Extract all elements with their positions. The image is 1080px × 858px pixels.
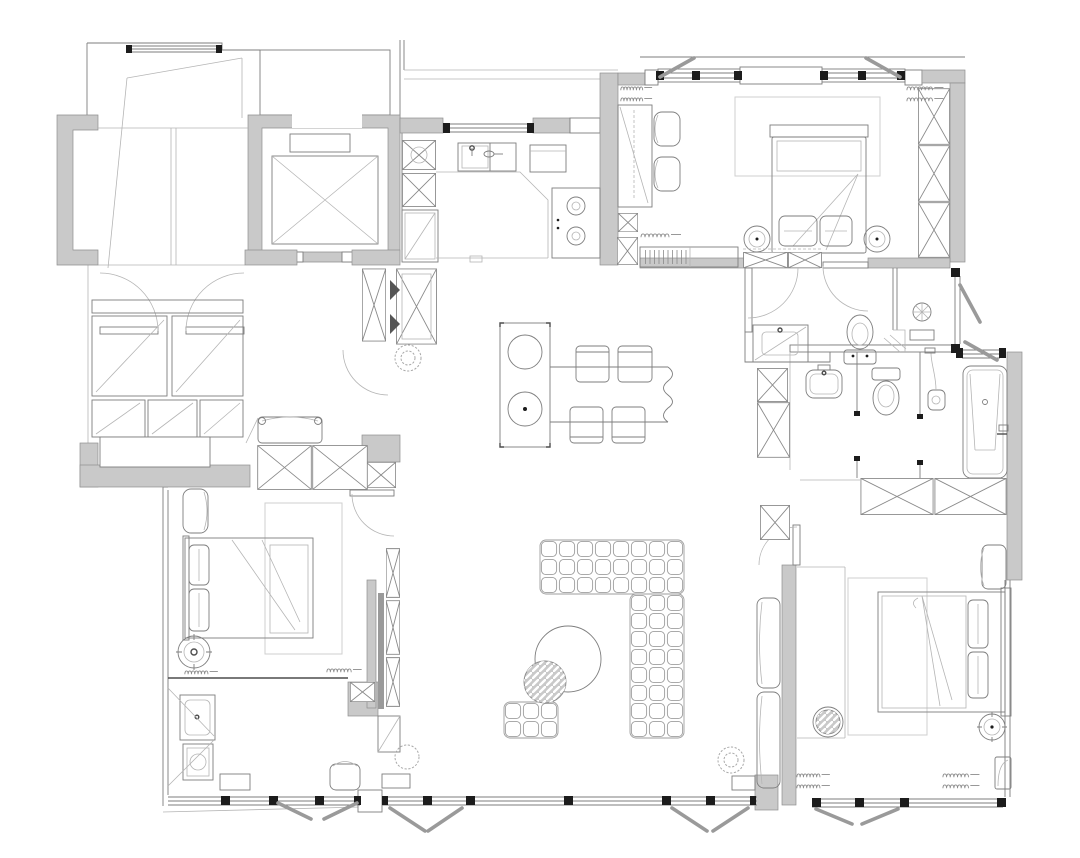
radiator-coil	[641, 234, 681, 237]
cabinet-x	[366, 462, 395, 487]
window-bedroom-top	[656, 67, 905, 84]
doormat-hatch	[220, 774, 250, 790]
blanket-fold	[232, 540, 300, 630]
bedroom-top-right	[618, 89, 950, 258]
kitchen-island	[500, 323, 550, 447]
round-nightstand	[977, 712, 1007, 742]
refrigerator-door-line	[405, 213, 435, 259]
dining-table	[550, 367, 673, 422]
mirror-panel	[378, 593, 384, 709]
wall-bedroom-corner	[922, 70, 965, 83]
drain	[983, 400, 988, 405]
wall-kitchen-top-right	[533, 118, 570, 133]
washer	[183, 744, 213, 780]
radiator-coil	[943, 774, 980, 777]
wardrobe-x	[918, 203, 949, 258]
headboard	[183, 536, 189, 640]
toilet	[844, 315, 876, 364]
kitchen	[402, 140, 600, 262]
radiator-coil	[621, 87, 652, 90]
door-hall-to-bath	[748, 268, 798, 318]
counter-tick	[470, 256, 482, 262]
tall-cabinet-x	[397, 269, 437, 344]
bed-frame	[878, 592, 1005, 712]
wall-kitchen-top-left	[400, 118, 443, 133]
radiator-coil	[185, 671, 218, 674]
open-sash	[866, 58, 900, 77]
radiators	[185, 87, 980, 788]
wardrobe-x	[313, 446, 368, 490]
wall-bench-sofa	[757, 598, 780, 788]
blanket-fold	[793, 174, 858, 250]
cabinet-x	[618, 213, 638, 232]
cabinet-x	[617, 237, 637, 264]
headboard	[1001, 588, 1011, 716]
open-sash	[660, 58, 694, 77]
radiator-coil	[943, 785, 980, 788]
cabinet-x	[788, 252, 821, 268]
radiator-coil	[797, 774, 830, 777]
wall-bedroom-bottom-right	[868, 258, 950, 268]
round-nightstand	[176, 634, 212, 670]
elevator	[272, 134, 378, 244]
bed-frame	[185, 538, 313, 638]
tall-cabinet-x	[362, 269, 385, 341]
rug	[265, 503, 342, 654]
plant-scribble	[395, 345, 421, 371]
desk	[618, 105, 652, 207]
window-living-bottom	[382, 796, 757, 805]
shower	[884, 268, 934, 352]
elevator-x	[272, 156, 378, 244]
open-sash	[428, 808, 462, 831]
plant-stool-hatched	[813, 707, 843, 737]
tv-console	[995, 757, 1011, 789]
wall-bath-upper-left	[745, 268, 752, 332]
cooktop	[552, 188, 600, 258]
partition-cap	[854, 456, 860, 461]
elevator-door-gap	[292, 114, 362, 128]
door-bedroom2	[350, 490, 394, 536]
bench-seat	[246, 417, 322, 443]
dining-chair	[576, 346, 609, 382]
dining-chair	[570, 407, 603, 443]
wardrobe-x	[258, 446, 312, 490]
duvet	[270, 545, 308, 633]
window-bedroom2-bottom	[168, 796, 361, 805]
open-sash	[816, 809, 852, 824]
partition-cap	[917, 414, 923, 419]
doormat-hatch	[732, 776, 755, 790]
modular-sofa	[540, 540, 684, 738]
wardrobe-x	[918, 146, 949, 202]
outline-master-right	[1005, 580, 1010, 797]
door-corridor	[343, 350, 388, 395]
kitchen-cabinet-x	[402, 173, 435, 206]
duct-kitchen	[570, 118, 600, 133]
kitchen-cabinet-x	[402, 140, 435, 169]
blanket-curl	[913, 598, 918, 608]
counter-hatch	[643, 250, 690, 264]
vanity-sink	[806, 365, 842, 398]
wardrobe-x	[861, 478, 933, 514]
elevator-counterweight	[290, 134, 350, 152]
dining-chair	[618, 346, 652, 382]
open-sash	[862, 809, 898, 824]
cabinet-fold-lines	[96, 403, 240, 434]
radiator-coil	[621, 98, 652, 101]
bathtub	[963, 366, 1008, 478]
partition-cap	[854, 411, 860, 416]
desk-chair	[654, 112, 680, 146]
wall-bedroom-top-arm	[618, 73, 645, 85]
armchair	[183, 489, 208, 533]
wall-foyer-band-right	[352, 250, 400, 265]
window-master-bottom	[812, 798, 1006, 807]
wall-kitchen-bedroom-divider	[600, 73, 618, 265]
wall-east-exterior	[1007, 352, 1022, 580]
wall-master-left	[782, 565, 796, 805]
window-bath-upper-right	[951, 268, 960, 353]
duvet	[882, 596, 966, 708]
desk-chair	[654, 157, 680, 191]
bed-double	[770, 125, 868, 253]
shower-shelf	[910, 330, 934, 340]
doormat-hatch	[382, 774, 410, 788]
wall-bedroom-right	[950, 83, 965, 262]
wardrobe-x	[386, 658, 400, 707]
open-sash	[672, 808, 707, 831]
foyer-stair-hall	[98, 58, 248, 268]
hatched-side-table	[524, 661, 566, 703]
radiator-coil	[327, 669, 362, 672]
master-bedroom	[797, 545, 1011, 789]
outline-bottom-chamfer	[163, 807, 360, 812]
round-nightstand	[744, 226, 770, 252]
partition-cap	[917, 460, 923, 465]
duvet-fold	[777, 141, 861, 171]
wardrobe-x	[386, 601, 400, 655]
wall-bath-lower-top	[790, 345, 958, 352]
faucet-symbol	[484, 151, 503, 157]
plant-scribble	[395, 745, 419, 769]
cabinet-x	[760, 505, 789, 539]
master-wardrobe-row	[800, 478, 1006, 514]
outline-lobby-right	[400, 40, 404, 118]
vanity-sink	[180, 695, 215, 740]
window-foyer-top	[126, 45, 222, 53]
open-sash	[390, 808, 425, 831]
open-sash	[960, 285, 980, 322]
doors	[100, 262, 868, 565]
oven	[530, 145, 566, 172]
closet-rod	[92, 300, 243, 313]
pier-living-window-left	[358, 790, 382, 812]
cabinet-x	[350, 682, 374, 702]
outline-bottom-left	[163, 487, 168, 806]
cabinet-x	[744, 252, 788, 268]
outline-kitchen-top	[404, 70, 618, 79]
wardrobe-x	[757, 403, 789, 458]
open-sash	[965, 342, 997, 360]
ottoman	[504, 702, 558, 738]
ramp-lines	[108, 58, 242, 268]
window-kitchen-top	[443, 123, 534, 133]
bed-foot-board	[770, 125, 868, 137]
bed-double	[878, 588, 1011, 716]
wall-closet-bottom	[80, 465, 250, 487]
shoe-bench	[100, 437, 210, 467]
sliding-track	[171, 128, 176, 265]
rug	[735, 97, 880, 176]
pier-living-window-right	[755, 775, 778, 810]
armchair	[981, 545, 1007, 589]
plant-scribble	[718, 747, 744, 773]
pier-bedroom-right	[905, 70, 922, 85]
bed-double	[183, 536, 313, 640]
door-swing-lines	[168, 688, 214, 786]
floor-plan-canvas	[0, 0, 1080, 858]
armchair-window	[330, 762, 360, 791]
door-bath-upper	[823, 262, 868, 311]
radiator-coil	[797, 785, 830, 788]
wall-duct-left	[57, 115, 98, 265]
elevator-lobby-outline	[260, 50, 390, 115]
toilet	[872, 368, 900, 415]
wardrobe-x	[386, 549, 400, 598]
wardrobe-x	[757, 368, 787, 401]
wall-foyer-band-mid	[245, 250, 297, 265]
floor-plan-svg	[0, 0, 1080, 858]
entry-closets	[92, 300, 243, 467]
dining-chair	[612, 407, 645, 443]
rug	[848, 578, 927, 735]
wardrobe-x	[935, 478, 1006, 514]
vanity-sink	[753, 325, 808, 362]
live-edge	[664, 367, 673, 422]
round-nightstand	[864, 226, 890, 252]
open-sash	[713, 808, 748, 831]
wardrobe-x	[918, 89, 949, 145]
wall-elevator-frame	[248, 115, 400, 262]
counter-edge	[436, 172, 548, 258]
handheld-shower	[925, 348, 945, 410]
